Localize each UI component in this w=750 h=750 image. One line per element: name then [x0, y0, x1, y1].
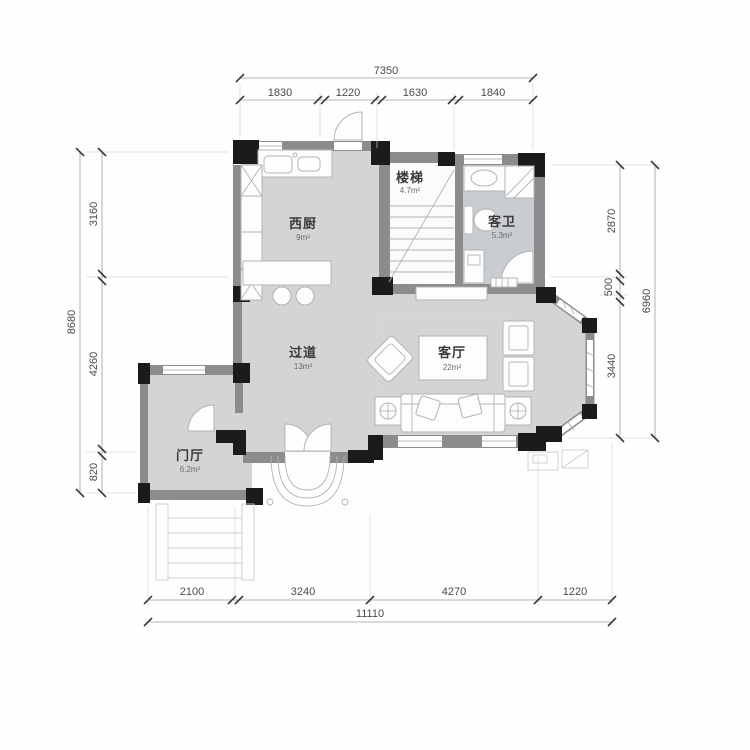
porch-steps — [285, 456, 330, 490]
foyer-label: 门厅 — [176, 448, 204, 463]
bar-stool — [296, 287, 314, 305]
floor-plan-image: 西厨 9m² 楼梯 4.7m² 客卫 5.3m² 过道 13m² 客厅 22m²… — [0, 0, 750, 750]
kitchen-sink-icon — [298, 157, 320, 171]
porch-post — [342, 499, 348, 505]
dim-top-seg3: 1630 — [403, 87, 427, 99]
floor-plan-canvas: 西厨 9m² 楼梯 4.7m² 客卫 5.3m² 过道 13m² 客厅 22m²… — [0, 0, 750, 750]
bathroom-label: 客卫 — [488, 214, 516, 229]
faucet-icon — [293, 153, 297, 157]
dim-bottom-seg1: 2100 — [180, 586, 204, 598]
porch-post — [267, 499, 273, 505]
corridor-area: 13m² — [294, 362, 313, 371]
stairs-label: 楼梯 — [396, 170, 424, 185]
kitchen-door-arc — [334, 112, 362, 140]
dim-bottom-seg3: 4270 — [442, 586, 466, 598]
toilet-tank — [464, 206, 473, 234]
dim-right-seg1: 2870 — [606, 209, 618, 233]
kitchen-sink-icon — [264, 156, 292, 173]
radiator — [491, 278, 517, 287]
exterior-staircase — [156, 504, 254, 580]
dimension-top: 7350 1830 1220 1630 1840 — [236, 65, 537, 150]
dim-top-seg4: 1840 — [481, 87, 505, 99]
dim-top-total: 7350 — [374, 65, 398, 77]
outdoor-units — [528, 450, 588, 470]
kitchen-label: 西厨 — [289, 216, 317, 231]
kitchen-island — [243, 261, 331, 285]
sofa-cushion — [458, 394, 482, 418]
bathroom-sink-icon — [471, 170, 497, 186]
dim-bottom-seg4: 1220 — [563, 586, 587, 598]
dim-top-seg2: 1220 — [336, 87, 360, 99]
bathroom-area: 5.3m² — [492, 231, 513, 240]
tv-cabinet — [416, 287, 487, 300]
dim-right-seg2: 500 — [603, 278, 615, 296]
dim-left-seg1: 3160 — [88, 202, 100, 226]
dim-left-total: 8680 — [66, 310, 78, 334]
stairs-area: 4.7m² — [400, 186, 421, 195]
bar-stool — [273, 287, 291, 305]
foyer-area: 6.2m² — [180, 465, 201, 474]
dim-right-total: 6960 — [641, 289, 653, 313]
dim-left-seg3: 820 — [88, 463, 100, 481]
dim-top-seg1: 1830 — [268, 87, 292, 99]
dim-bottom-total: 11110 — [356, 608, 384, 620]
dim-bottom-seg2: 3240 — [291, 586, 315, 598]
dim-right-seg3: 3440 — [606, 354, 618, 378]
kitchen-area: 9m² — [296, 233, 310, 242]
porch-steps — [278, 456, 337, 498]
corridor-label: 过道 — [289, 345, 317, 360]
living-label: 客厅 — [438, 345, 466, 360]
dim-left-seg2: 4260 — [88, 352, 100, 376]
living-area: 22m² — [443, 363, 462, 372]
